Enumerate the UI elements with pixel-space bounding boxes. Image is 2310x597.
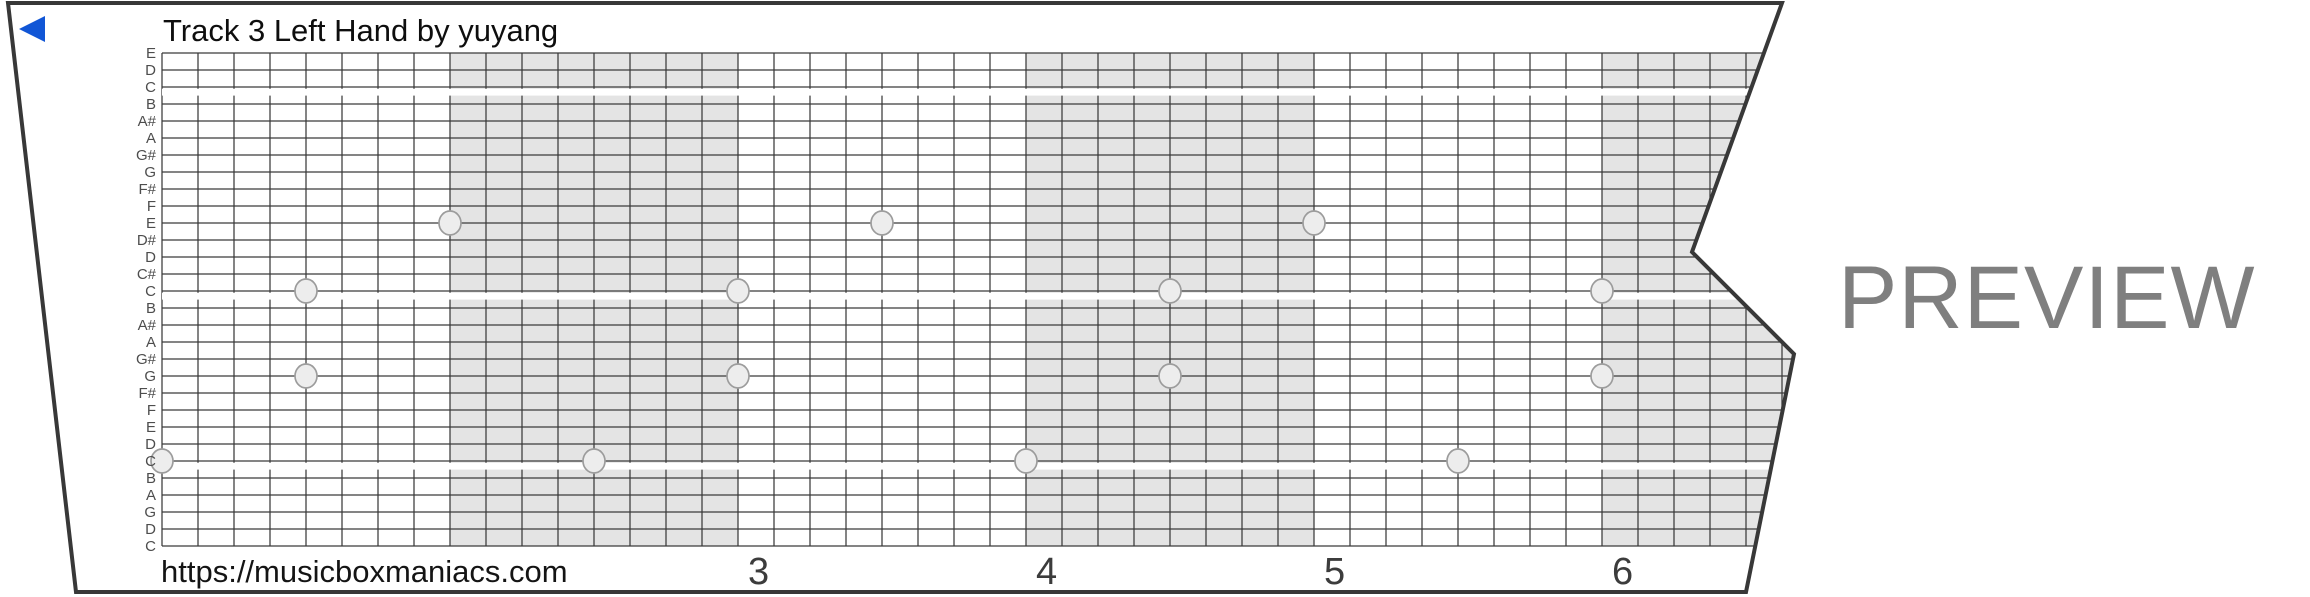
measure-number: 3 <box>748 551 769 593</box>
note-circle <box>1015 449 1037 473</box>
note-label: F# <box>138 181 156 198</box>
note-circle <box>1303 211 1325 235</box>
note-circle <box>1591 279 1613 303</box>
note-label: A <box>146 130 156 147</box>
note-label: G <box>144 368 156 385</box>
note-label: C# <box>137 266 157 283</box>
note-label: G <box>144 164 156 181</box>
note-circle <box>727 364 749 388</box>
note-label: A <box>146 487 156 504</box>
strip-title: Track 3 Left Hand by yuyang <box>163 13 558 49</box>
music-strip-preview: EDCBA#AG#GF#FED#DC#CBA#AG#GF#FEDCBAGDC34… <box>0 0 2310 597</box>
note-label: C <box>145 283 156 300</box>
measure-number: 6 <box>1612 551 1633 593</box>
note-label: D <box>145 62 156 79</box>
note-label: D <box>145 436 156 453</box>
note-circle <box>583 449 605 473</box>
note-label: F <box>147 198 156 215</box>
octave-separator <box>162 293 1800 300</box>
note-circle <box>1591 364 1613 388</box>
note-circle <box>727 279 749 303</box>
note-label: A# <box>138 113 157 130</box>
note-label: B <box>146 96 156 113</box>
note-circle <box>1447 449 1469 473</box>
note-label: G# <box>136 351 157 368</box>
note-label: F <box>147 402 156 419</box>
note-circle <box>1159 279 1181 303</box>
note-label: B <box>146 300 156 317</box>
note-label: A <box>146 334 156 351</box>
note-label: E <box>146 419 156 436</box>
note-circle <box>871 211 893 235</box>
octave-separator <box>162 463 1800 470</box>
note-label: E <box>146 215 156 232</box>
note-label: A# <box>138 317 157 334</box>
note-circle <box>439 211 461 235</box>
note-circle <box>295 279 317 303</box>
measure-number: 4 <box>1036 551 1057 593</box>
note-label: C <box>145 79 156 96</box>
preview-watermark: PREVIEW <box>1838 246 2255 349</box>
note-label: B <box>146 470 156 487</box>
note-label: D# <box>137 232 157 249</box>
note-label: D <box>145 249 156 266</box>
note-label: F# <box>138 385 156 402</box>
octave-separator <box>162 89 1800 96</box>
note-circle <box>1159 364 1181 388</box>
measure-number: 5 <box>1324 551 1345 593</box>
note-label: G# <box>136 147 157 164</box>
note-label: C <box>145 453 156 470</box>
note-label: E <box>146 45 156 62</box>
site-url: https://musicboxmaniacs.com <box>161 554 568 590</box>
note-circle <box>295 364 317 388</box>
note-label: G <box>144 504 156 521</box>
note-label: D <box>145 521 156 538</box>
note-label: C <box>145 538 156 555</box>
